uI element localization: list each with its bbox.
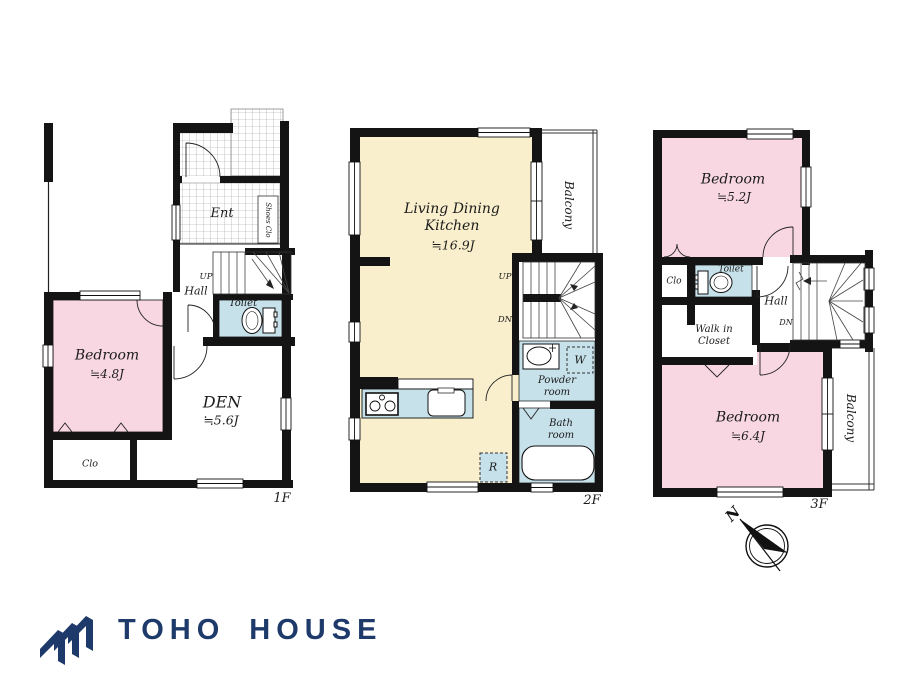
balcony-2f <box>542 130 597 257</box>
bedroom-52-fill <box>662 138 802 257</box>
bathtub-icon <box>522 446 594 480</box>
shoes-closet-box <box>258 196 278 243</box>
floor2-plan <box>349 128 603 492</box>
floor1-plan <box>43 109 295 488</box>
toho-house-logo-mark <box>40 616 93 665</box>
floor3-stairs <box>793 263 865 340</box>
toilet-icon-1f <box>242 308 277 334</box>
floorplan-drawing <box>0 0 904 678</box>
kitchen-sink-icon <box>428 388 465 416</box>
floor3-plan <box>653 129 874 497</box>
ldk-fill <box>360 137 532 483</box>
floor1-stairs <box>213 252 291 294</box>
sink-icon <box>523 344 559 369</box>
fridge-box <box>480 453 507 482</box>
compass-icon <box>740 519 788 571</box>
bedroom-64-fill <box>662 352 823 488</box>
stove-icon <box>366 393 398 415</box>
porch-tile <box>231 109 283 176</box>
floorplan-canvas: Ent Shoes Clo UP Hall Toilet Bedroom ≒4.… <box>0 0 904 678</box>
porch-tile-left <box>180 133 231 176</box>
balcony-3f <box>832 348 874 490</box>
washer-box <box>567 347 593 373</box>
